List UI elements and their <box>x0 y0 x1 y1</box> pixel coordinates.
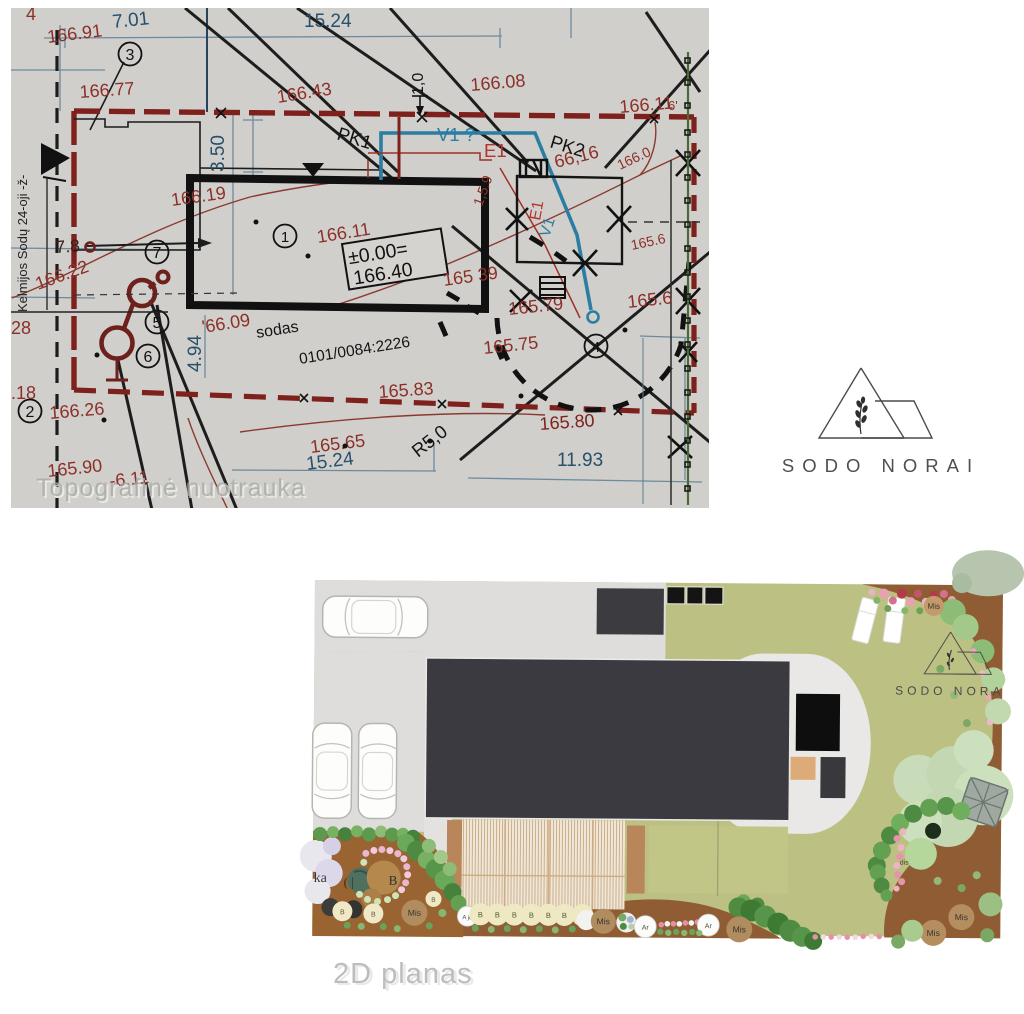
svg-text:6': 6' <box>668 98 678 113</box>
svg-text:28: 28 <box>11 318 31 338</box>
svg-text:166.77: 166.77 <box>79 78 135 102</box>
svg-text:Mis: Mis <box>597 916 610 926</box>
svg-text:6: 6 <box>144 349 153 366</box>
svg-text:Ar: Ar <box>705 923 713 930</box>
svg-text:B: B <box>512 911 517 920</box>
svg-text:E1: E1 <box>484 140 507 161</box>
svg-text:Kelmijos Sodų 24-oji -ž-: Kelmijos Sodų 24-oji -ž- <box>15 175 30 312</box>
svg-text:SODO NORA: SODO NORA <box>895 684 1004 699</box>
svg-text:Mis: Mis <box>927 928 940 938</box>
svg-text:15.24: 15.24 <box>304 11 352 32</box>
svg-text:165.83: 165.83 <box>378 378 434 402</box>
svg-text:dis: dis <box>900 860 910 867</box>
svg-text:Topografinė nuotrauka: Topografinė nuotrauka <box>36 474 306 502</box>
svg-text:3: 3 <box>126 47 135 64</box>
svg-text:B: B <box>478 910 483 919</box>
svg-text:B: B <box>562 911 567 920</box>
svg-text:1,0: 1,0 <box>410 73 427 95</box>
svg-text:B: B <box>431 897 435 904</box>
svg-text:B: B <box>529 911 534 920</box>
svg-text:Mis: Mis <box>955 912 968 922</box>
svg-text:Mis: Mis <box>733 924 746 934</box>
svg-text:4: 4 <box>26 4 36 24</box>
svg-text:4: 4 <box>592 339 600 356</box>
svg-text:7: 7 <box>153 245 162 262</box>
svg-text:V1 ?: V1 ? <box>437 124 475 145</box>
svg-text:Mis: Mis <box>408 908 421 918</box>
svg-text:4.94: 4.94 <box>185 335 206 372</box>
svg-text:B: B <box>495 910 500 919</box>
svg-text:2D planas: 2D planas <box>333 958 473 990</box>
svg-text:2: 2 <box>26 404 35 421</box>
svg-text:B: B <box>389 873 398 888</box>
svg-text:ka: ka <box>314 871 328 886</box>
svg-text:Ar: Ar <box>642 925 650 932</box>
svg-text:165.80: 165.80 <box>539 410 595 434</box>
svg-text:B: B <box>546 911 551 920</box>
svg-text:7.8: 7.8 <box>55 235 81 257</box>
svg-text:SODO NORAI: SODO NORAI <box>782 455 980 476</box>
svg-text:7.01: 7.01 <box>111 8 150 33</box>
svg-text:Mis: Mis <box>928 602 941 611</box>
svg-text:.18: .18 <box>11 383 36 403</box>
svg-text:1: 1 <box>281 229 289 246</box>
svg-text:5: 5 <box>153 315 162 332</box>
svg-text:E1: E1 <box>527 199 547 221</box>
svg-text:B: B <box>340 909 345 916</box>
svg-text:B: B <box>371 911 376 918</box>
svg-text:( |: ( | <box>344 874 354 889</box>
svg-text:11.93: 11.93 <box>557 450 603 471</box>
svg-text:3.50: 3.50 <box>208 135 229 172</box>
